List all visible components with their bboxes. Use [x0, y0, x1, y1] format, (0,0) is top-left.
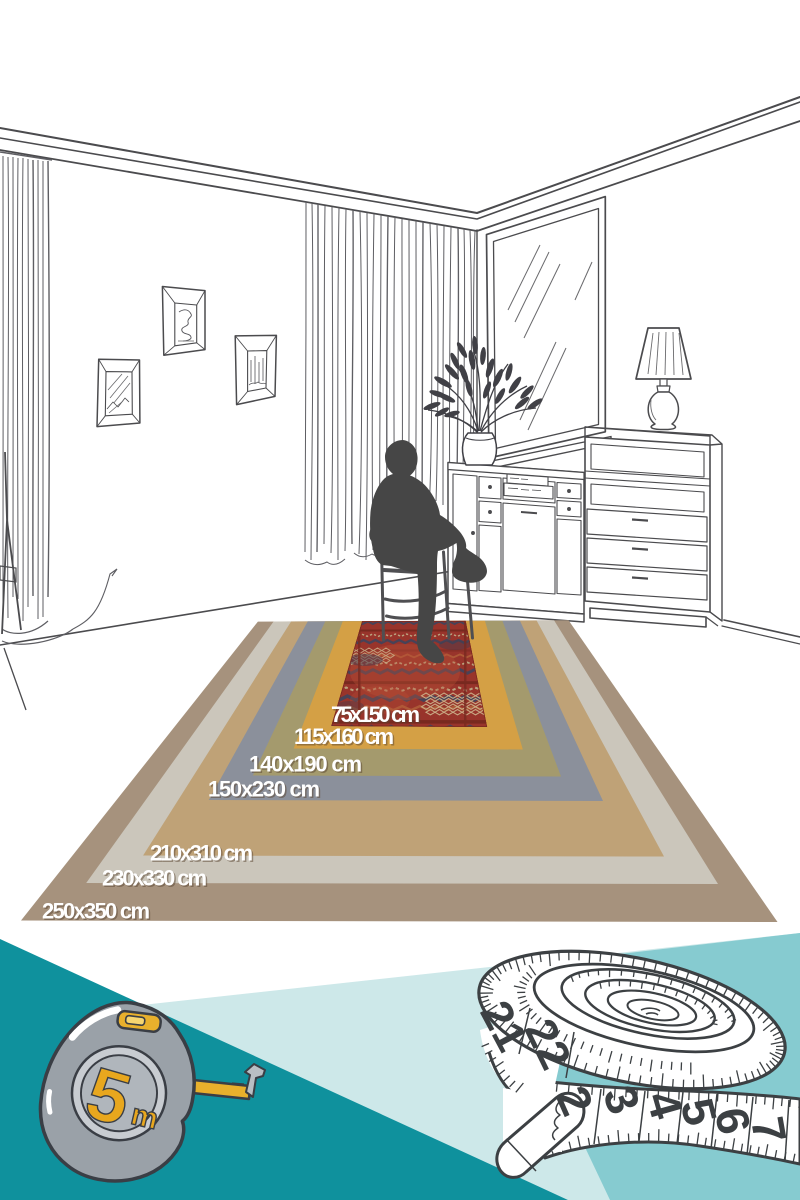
- svg-text:230x330 cm: 230x330 cm: [102, 866, 207, 891]
- svg-text:210x310 cm: 210x310 cm: [150, 841, 253, 866]
- svg-text:250x350 cm: 250x350 cm: [42, 899, 150, 924]
- svg-text:150x230 cm: 150x230 cm: [208, 777, 320, 802]
- svg-text:115x160 cm: 115x160 cm: [294, 724, 394, 749]
- svg-text:140x190 cm: 140x190 cm: [249, 752, 362, 777]
